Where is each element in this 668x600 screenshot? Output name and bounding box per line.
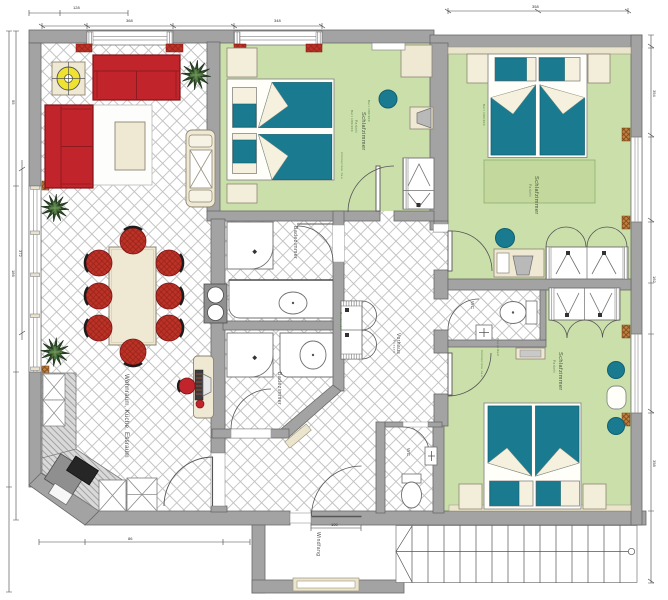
svg-text:Wohnraum, Küche, Essraum: Wohnraum, Küche, Essraum — [123, 374, 130, 458]
svg-text:Schlafzimmer: Schlafzimmer — [557, 352, 563, 391]
svg-text:55: 55 — [11, 100, 16, 105]
svg-text:Fliesen: Fliesen — [392, 340, 396, 353]
svg-text:Schlafzimmer: Schlafzimmer — [360, 112, 366, 151]
svg-text:Zimmertüre neu: Zimmertüre neu — [340, 152, 344, 179]
svg-text:Parkett: Parkett — [552, 360, 556, 373]
svg-text:WC: WC — [470, 301, 475, 310]
svg-text:Bett 180/200: Bett 180/200 — [350, 110, 354, 132]
svg-text:186: 186 — [11, 270, 16, 277]
svg-text:100: 100 — [331, 522, 338, 527]
svg-text:128: 128 — [73, 5, 80, 10]
svg-text:Parkett: Parkett — [528, 184, 532, 197]
svg-text:368: 368 — [126, 18, 133, 23]
svg-text:WC: WC — [406, 448, 411, 457]
svg-text:Zimmertüre neu: Zimmertüre neu — [480, 350, 484, 377]
svg-text:Bett 180/200: Bett 180/200 — [367, 100, 371, 122]
svg-text:348: 348 — [274, 18, 281, 23]
svg-text:162: 162 — [652, 276, 657, 283]
svg-text:Doppelbett: Doppelbett — [496, 338, 500, 357]
svg-text:Badezimmer: Badezimmer — [276, 372, 282, 405]
svg-text:Windfang: Windfang — [315, 532, 321, 556]
svg-text:Garderobe: Garderobe — [339, 312, 343, 330]
svg-text:Bett 180/200: Bett 180/200 — [482, 104, 486, 126]
svg-text:354: 354 — [652, 90, 657, 97]
svg-text:86: 86 — [128, 536, 133, 541]
svg-text:Badezimmer: Badezimmer — [292, 226, 298, 259]
svg-text:Schlafzimmer: Schlafzimmer — [533, 176, 539, 215]
svg-text:358: 358 — [532, 4, 539, 9]
svg-text:358: 358 — [652, 460, 657, 467]
svg-text:372: 372 — [18, 250, 23, 257]
